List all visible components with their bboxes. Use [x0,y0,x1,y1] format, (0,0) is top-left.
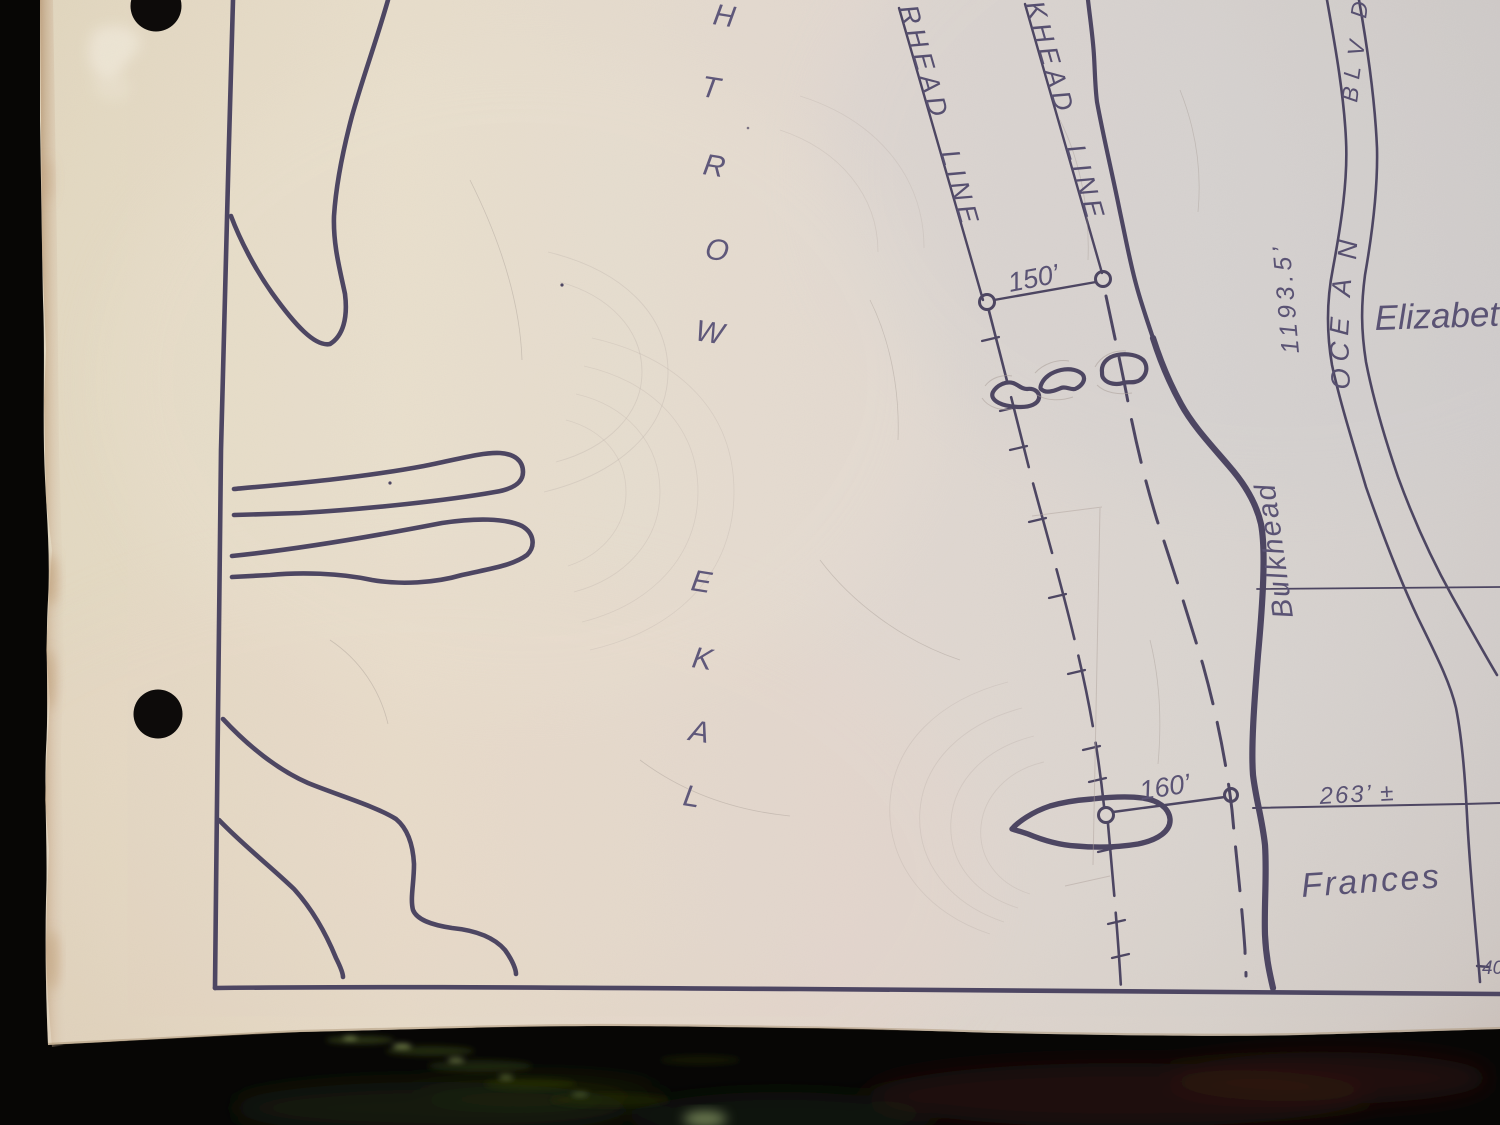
svg-text:E: E [1324,315,1355,336]
svg-text:O: O [1325,367,1356,390]
svg-text:A: A [1326,277,1357,299]
svg-text:N: N [1332,238,1363,260]
svg-text:40: 40 [1482,958,1500,979]
svg-text:Elizabeth: Elizabeth [1374,294,1500,338]
svg-text:263’ ±: 263’ ± [1318,779,1396,810]
svg-text:D: D [1345,0,1373,20]
svg-text:C: C [1324,340,1355,362]
